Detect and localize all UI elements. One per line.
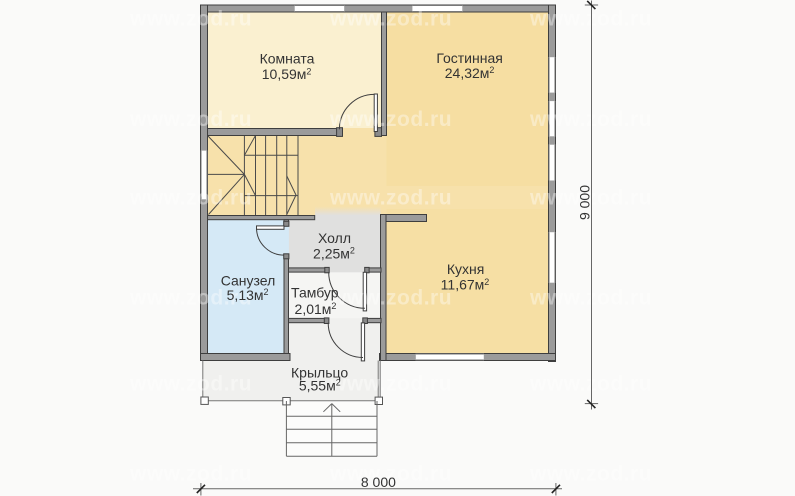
svg-text:www.zod.ru: www.zod.ru — [329, 187, 452, 210]
svg-text:8 000: 8 000 — [361, 474, 396, 490]
svg-text:24,32м2: 24,32м2 — [445, 65, 495, 81]
svg-text:www.zod.ru: www.zod.ru — [529, 373, 652, 396]
svg-text:www.zod.ru: www.zod.ru — [329, 287, 452, 310]
svg-text:2,01м2: 2,01м2 — [295, 301, 337, 317]
svg-text:www.zod.ru: www.zod.ru — [529, 463, 652, 486]
svg-text:www.zod.ru: www.zod.ru — [329, 108, 452, 131]
svg-text:www.zod.ru: www.zod.ru — [129, 463, 252, 486]
svg-text:11,67м2: 11,67м2 — [441, 277, 490, 293]
svg-text:www.zod.ru: www.zod.ru — [529, 8, 652, 31]
svg-text:5,55м2: 5,55м2 — [299, 378, 341, 394]
svg-text:5,13м2: 5,13м2 — [227, 287, 269, 303]
svg-text:2,25м2: 2,25м2 — [313, 245, 355, 261]
svg-text:Кухня: Кухня — [447, 261, 484, 277]
svg-text:www.zod.ru: www.zod.ru — [329, 8, 452, 31]
svg-text:Гостинная: Гостинная — [436, 50, 503, 66]
svg-text:www.zod.ru: www.zod.ru — [129, 187, 252, 210]
svg-text:10,59м2: 10,59м2 — [262, 66, 312, 82]
svg-text:Холл: Холл — [318, 230, 351, 246]
svg-text:9 000: 9 000 — [577, 185, 593, 220]
svg-text:Комната: Комната — [260, 51, 315, 67]
svg-text:www.zod.ru: www.zod.ru — [129, 373, 252, 396]
svg-text:Тамбур: Тамбур — [291, 285, 339, 301]
svg-text:www.zod.ru: www.zod.ru — [129, 8, 252, 31]
svg-text:www.zod.ru: www.zod.ru — [529, 108, 652, 131]
svg-text:www.zod.ru: www.zod.ru — [129, 108, 252, 131]
svg-text:www.zod.ru: www.zod.ru — [529, 287, 652, 310]
